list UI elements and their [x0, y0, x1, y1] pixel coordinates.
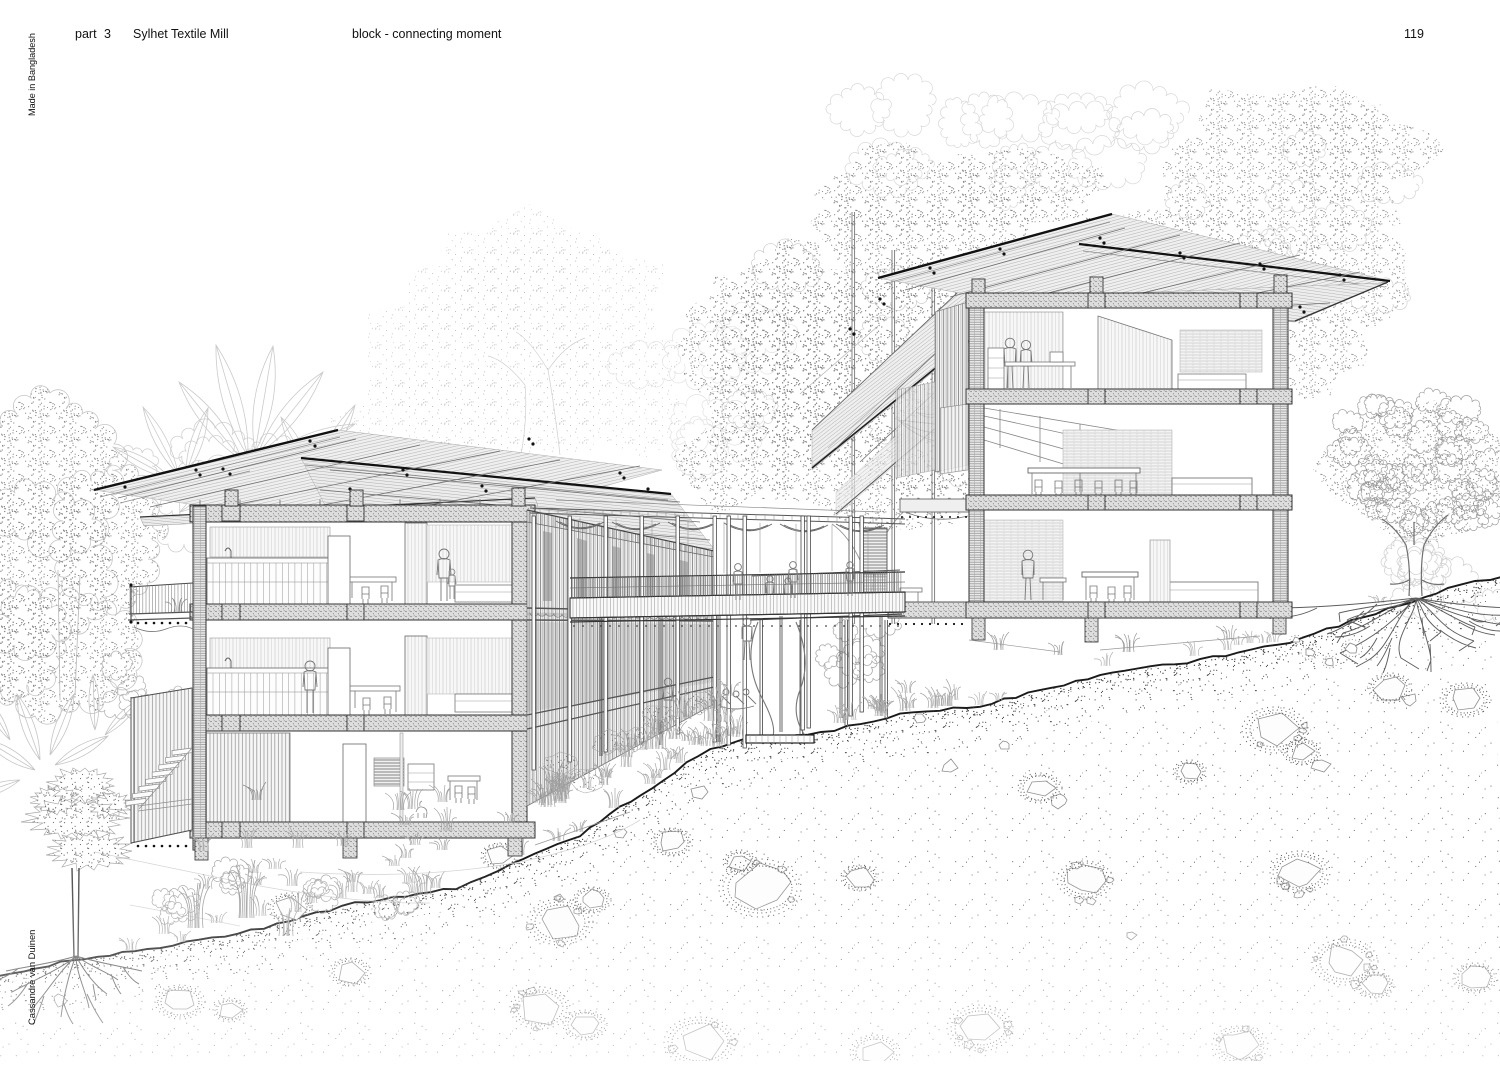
svg-text:Cassandre van Duinen: Cassandre van Duinen: [26, 930, 37, 1025]
svg-text:block - connecting moment: block - connecting moment: [352, 27, 502, 41]
svg-text:119: 119: [1404, 27, 1424, 41]
svg-text:Made in Bangladesh: Made in Bangladesh: [27, 33, 37, 116]
svg-text:Sylhet Textile Mill: Sylhet Textile Mill: [133, 27, 229, 41]
svg-text:part: part: [75, 27, 97, 41]
svg-text:3: 3: [104, 27, 111, 41]
